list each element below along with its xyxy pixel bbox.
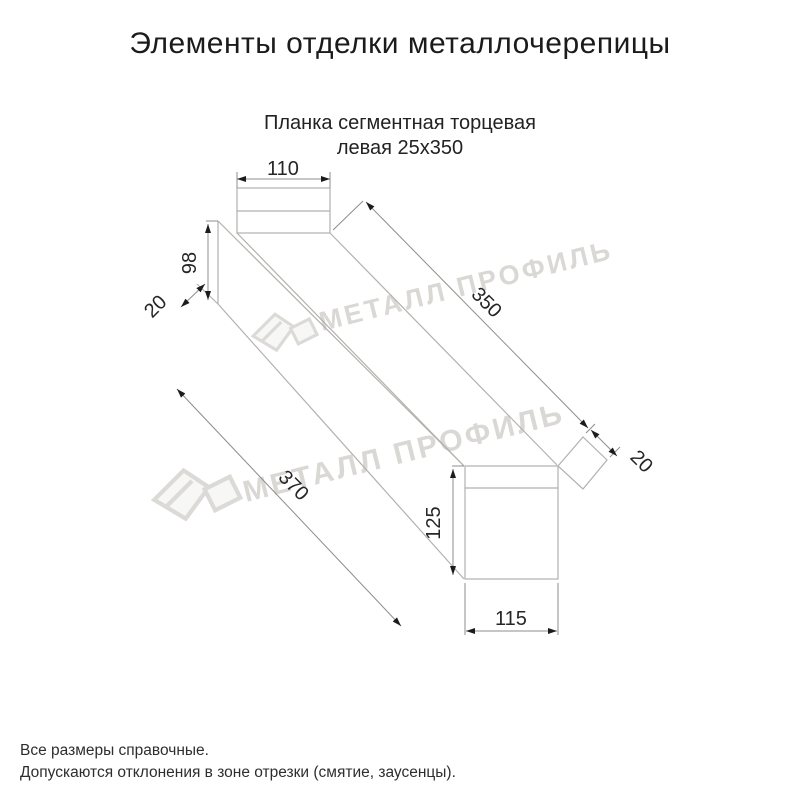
metal-profil-logo-icon <box>253 314 317 350</box>
profile-bottom-end-face <box>465 466 558 579</box>
dimension-98: 98 <box>179 221 218 300</box>
profile-long-edge-fold <box>237 233 464 466</box>
watermark-brand-text: МЕТАЛЛ ПРОФИЛЬ <box>316 235 616 337</box>
dim-110-label: 110 <box>267 158 299 180</box>
dim-20-right-extension-b <box>610 447 620 457</box>
dim-98-label: 98 <box>179 252 201 274</box>
dim-115-label: 115 <box>495 608 527 630</box>
dimension-20-left: 20 <box>140 284 205 322</box>
dimension-125: 125 <box>423 466 464 575</box>
dimension-370: 370 <box>177 389 401 626</box>
technical-drawing: МЕТАЛЛ ПРОФИЛЬ МЕТАЛЛ ПРОФИЛЬ 110 <box>0 0 800 800</box>
dim-350-extension <box>333 201 363 230</box>
dim-20-right-label: 20 <box>626 446 657 477</box>
profile-outline <box>197 188 607 579</box>
watermark-upper: МЕТАЛЛ ПРОФИЛЬ <box>253 235 616 350</box>
dim-20-right-extension-a <box>586 424 595 433</box>
dimension-115: 115 <box>465 583 558 635</box>
metal-profil-logo-icon <box>154 470 240 518</box>
footer-note-1: Все размеры справочные. <box>20 740 456 762</box>
dim-125-label: 125 <box>423 506 445 539</box>
dimension-110: 110 <box>237 158 330 188</box>
watermark-lower: МЕТАЛЛ ПРОФИЛЬ <box>154 397 568 519</box>
dim-20-right-line <box>591 430 617 456</box>
dim-20-left-label: 20 <box>140 291 171 322</box>
profile-long-edge-upper <box>218 221 464 466</box>
profile-far-lip-face <box>558 437 607 489</box>
footer-note-2: Допускаются отклонения в зоне отрезки (с… <box>20 762 456 784</box>
dim-20-left-line <box>181 284 205 307</box>
footer-notes: Все размеры справочные. Допускаются откл… <box>20 740 456 783</box>
dim-370-line <box>177 389 401 626</box>
